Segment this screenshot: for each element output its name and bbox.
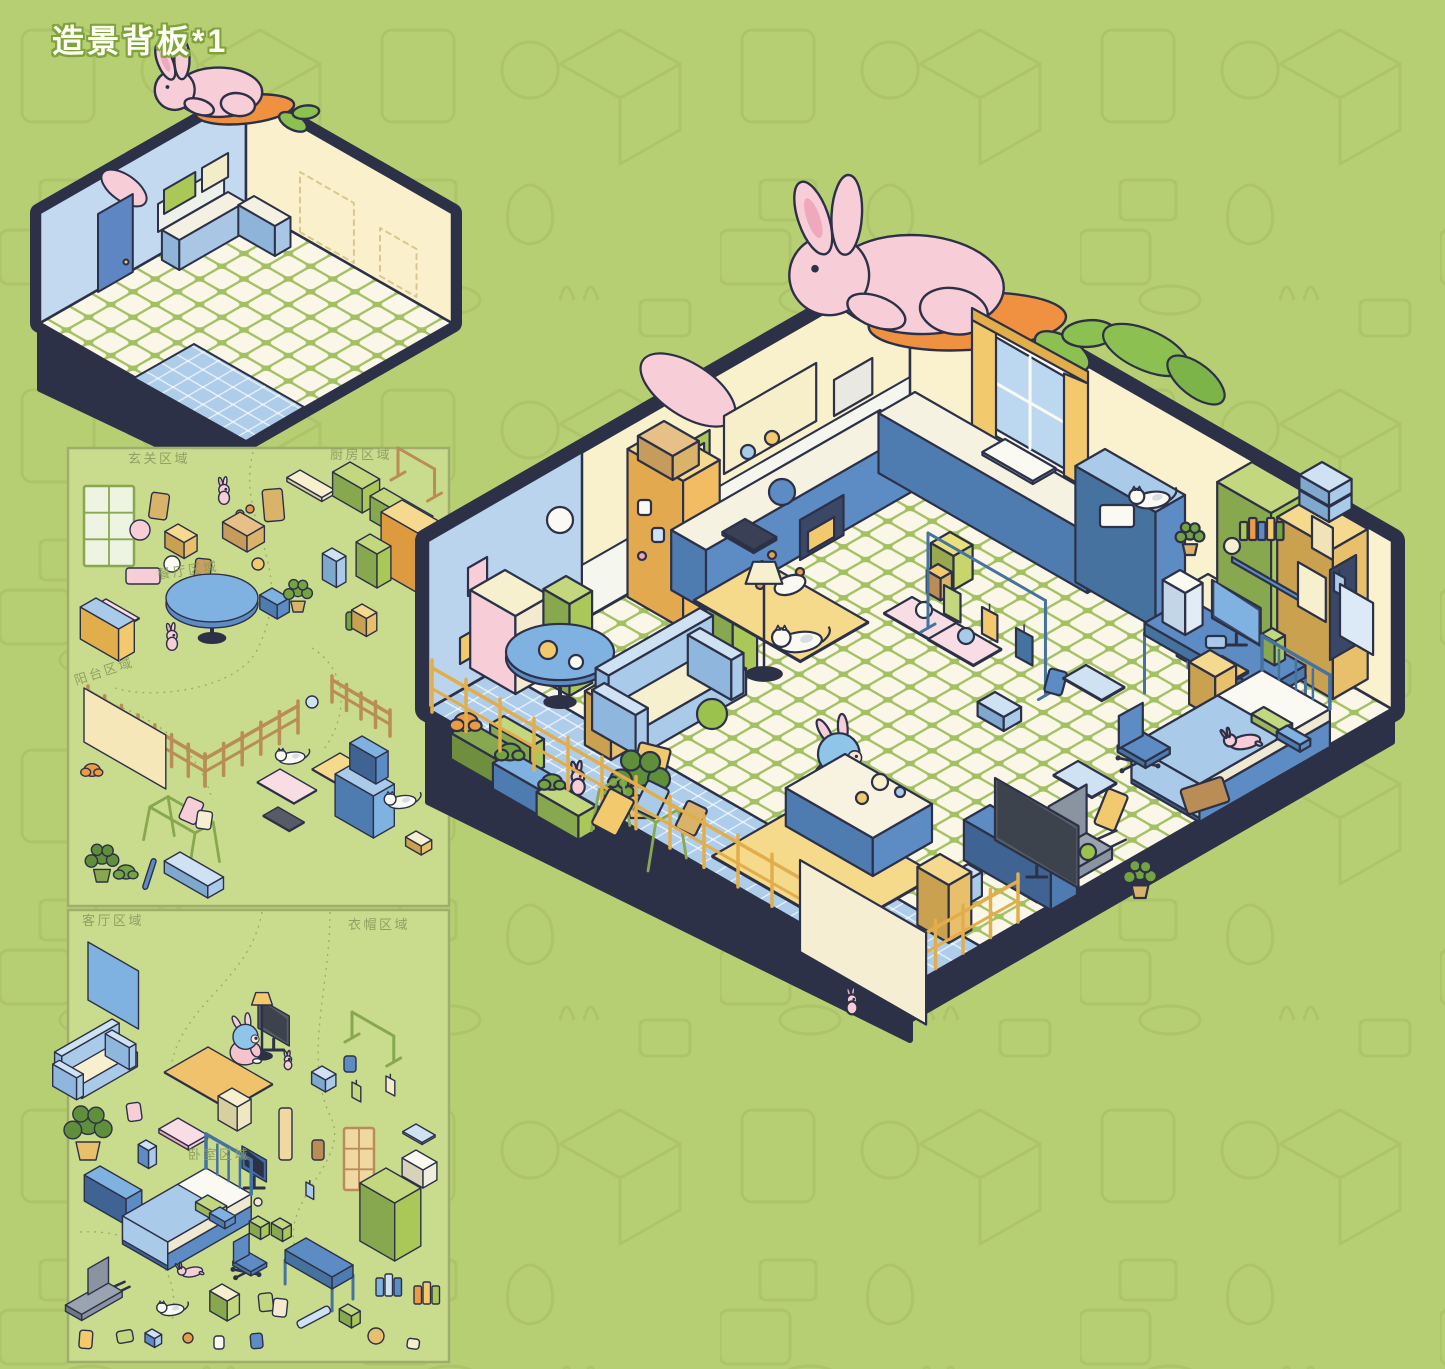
microwave — [1100, 505, 1134, 527]
snack-plate — [856, 792, 868, 804]
brown-bag — [312, 1140, 324, 1160]
cream-paper — [407, 1338, 420, 1350]
poster: 玄关区域厨房区域餐厅区域阳台区域 客厅区域衣帽区域卧室区域 — [0, 0, 1445, 1369]
food-bowl-yellow — [539, 641, 557, 659]
bunny-sticker — [218, 476, 230, 504]
poster-title: 造景背板*1 — [52, 16, 228, 62]
pet-bowl-2 — [958, 628, 974, 644]
pink-bag — [126, 1102, 142, 1122]
blue-pot — [769, 479, 795, 505]
valance-pink — [126, 568, 160, 584]
region-label: 厨房区域 — [330, 447, 392, 462]
sticker-sheet-2: 客厅区域衣帽区域卧室区域 — [53, 910, 449, 1362]
bunny-basket — [368, 1328, 384, 1344]
fridge-note-1 — [638, 500, 651, 515]
bunny-small — [284, 1050, 292, 1069]
corner-wardrobe — [360, 1168, 421, 1261]
books-orange — [414, 1282, 440, 1304]
plate — [306, 696, 318, 708]
backboard-door-knob — [124, 260, 129, 265]
region-label: 衣帽区域 — [348, 917, 410, 932]
mirror — [130, 520, 150, 540]
poster-b — [272, 1298, 288, 1317]
door-panel-yellow — [279, 1108, 292, 1160]
region-label: 卧室区域 — [188, 1147, 250, 1162]
teacup — [895, 787, 905, 797]
books-blue — [376, 1274, 402, 1296]
bunny-plush — [166, 622, 178, 650]
sticker-sheet-1: 玄关区域厨房区域餐厅区域阳台区域 — [68, 447, 449, 906]
moon-lamp — [1224, 538, 1240, 554]
region-label: 玄关区域 — [128, 451, 190, 466]
poster-a — [258, 1293, 274, 1312]
food-bowl — [252, 558, 264, 570]
rug-star-1 — [768, 551, 776, 559]
fridge-note-2 — [652, 528, 664, 542]
dish-2 — [765, 431, 779, 445]
carrot-2 — [246, 505, 254, 513]
dish-1 — [741, 445, 755, 459]
window-sticker — [84, 486, 134, 566]
shelf-books — [1240, 518, 1284, 540]
blue-book — [344, 1056, 356, 1072]
mushroom — [183, 1333, 193, 1343]
pc-tower — [1163, 570, 1203, 635]
region-label: 客厅区域 — [82, 913, 144, 928]
bunny-on-balcony — [570, 761, 585, 795]
robot-toy-blue — [138, 1140, 156, 1169]
bunny-small-front — [846, 986, 858, 1014]
blue-bag — [250, 1333, 263, 1349]
fridge-magnet — [638, 552, 646, 560]
scene-canvas: 玄关区域厨房区域餐厅区域阳台区域 客厅区域衣帽区域卧室区域 — [0, 0, 1445, 1369]
plate-white — [569, 655, 583, 669]
tissue-box — [1206, 636, 1226, 648]
wall-clock — [547, 507, 573, 533]
hanging-bag — [148, 492, 169, 520]
magazine — [195, 810, 212, 830]
yellow-paper — [79, 1330, 93, 1349]
hanging-clothes — [262, 488, 285, 522]
frog-cushion — [697, 699, 727, 729]
notepad — [214, 1336, 224, 1349]
mouse — [254, 1198, 262, 1206]
green-mat-folded — [116, 1329, 134, 1344]
pet-bowl-1 — [916, 602, 932, 618]
teapot — [872, 774, 888, 790]
snack-shelf — [322, 548, 346, 588]
green-apple-speaker — [1080, 844, 1096, 860]
